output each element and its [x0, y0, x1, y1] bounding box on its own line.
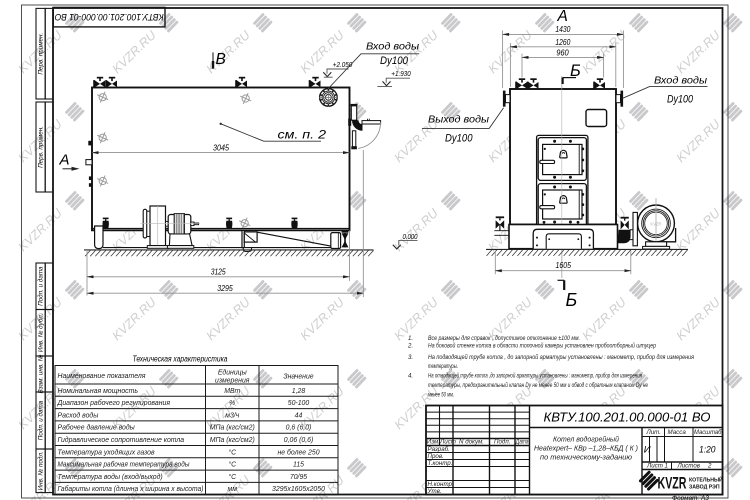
svg-text:измерения: измерения: [215, 378, 250, 385]
svg-text:Подп. и дата: Подп. и дата: [36, 400, 44, 440]
svg-text:°С: °С: [228, 448, 237, 456]
svg-text:Подп.: Подп.: [494, 439, 510, 446]
svg-text:°С: °С: [228, 473, 237, 481]
svg-text:0,6 (6,0): 0,6 (6,0): [286, 425, 312, 432]
svg-text:Б: Б: [570, 62, 581, 80]
svg-text:70/95: 70/95: [290, 474, 307, 481]
svg-text:А3: А3: [700, 495, 709, 500]
svg-text:Перв. примен.: Перв. примен.: [37, 126, 44, 168]
svg-text:МПа (кгс/см2): МПа (кгс/см2): [210, 437, 255, 444]
svg-text:Наименование показателя: Наименование показателя: [58, 373, 146, 380]
svg-text:3295: 3295: [217, 283, 233, 293]
svg-text:1:20: 1:20: [699, 445, 716, 456]
svg-text:На боковой стенке котла в обла: На боковой стенке котла в области топочн…: [428, 343, 657, 350]
svg-text:КОТЕЛЬНЫЙ: КОТЕЛЬНЫЙ: [689, 476, 723, 484]
svg-text:N докум.: N докум.: [459, 439, 484, 446]
svg-text:1.: 1.: [408, 335, 413, 342]
svg-text:2: 2: [707, 463, 712, 470]
svg-text:+1.930: +1.930: [391, 69, 411, 78]
svg-text:температуры, предохранительный: температуры, предохранительный клапан Dу…: [428, 382, 648, 389]
svg-text:Heatexpert– КВр –1,28–КБД ( К: Heatexpert– КВр –1,28–КБД ( К ): [534, 446, 638, 453]
svg-text:Подп. и дата: Подп. и дата: [36, 266, 44, 306]
svg-text:Инв. № дубл.: Инв. № дубл.: [36, 313, 44, 352]
svg-text:На отводящей трубе котла ,до з: На отводящей трубе котла ,до запорной ар…: [428, 373, 643, 380]
svg-text:см. п. 2: см. п. 2: [278, 128, 327, 142]
svg-text:Вход воды: Вход воды: [366, 41, 419, 53]
svg-text:44: 44: [295, 412, 303, 419]
svg-text:+2.050: +2.050: [333, 60, 353, 69]
svg-text:0.000: 0.000: [403, 232, 419, 241]
svg-text:Пров.: Пров.: [428, 453, 444, 460]
svg-text:Dy100: Dy100: [445, 133, 473, 145]
svg-text:Dy100: Dy100: [380, 55, 409, 67]
svg-text:А: А: [557, 8, 568, 25]
svg-text:3.: 3.: [408, 354, 413, 361]
svg-text:Техническая характеристика: Техническая характеристика: [133, 355, 229, 364]
svg-text:3045: 3045: [213, 143, 229, 153]
svg-text:Котел водогрейный: Котел водогрейный: [553, 436, 619, 444]
svg-text:КВТУ.100.201.00.000-01 ВО: КВТУ.100.201.00.000-01 ВО: [544, 410, 711, 425]
svg-text:Вход воды: Вход воды: [654, 75, 707, 87]
svg-text:м3/ч: м3/ч: [225, 412, 239, 419]
svg-text:Расход воды: Расход воды: [58, 411, 99, 419]
svg-text:Масштаб: Масштаб: [694, 429, 722, 436]
svg-text:Разраб.: Разраб.: [428, 446, 450, 453]
svg-text:Перв. примен.: Перв. примен.: [37, 33, 44, 75]
svg-text:Температура уходящих газов: Температура уходящих газов: [58, 448, 156, 456]
svg-text:Т.контр.: Т.контр.: [428, 460, 453, 467]
svg-text:Взам. инв. №: Взам. инв. №: [37, 354, 44, 393]
svg-text:%: %: [229, 400, 235, 407]
svg-text:Температура воды (вход/выход): Температура воды (вход/выход): [58, 473, 163, 481]
svg-text:В: В: [216, 51, 226, 68]
svg-text:Лист: Лист: [646, 463, 663, 470]
svg-text:Все размеры для справок , допу: Все размеры для справок , допустимое отк…: [428, 335, 580, 342]
svg-text:1430: 1430: [555, 24, 570, 34]
svg-text:А: А: [59, 152, 70, 169]
svg-text:Формат: Формат: [672, 495, 698, 500]
svg-text:мм: мм: [228, 486, 238, 493]
svg-text:Б: Б: [566, 290, 578, 310]
svg-text:Максимальная рабочая температу: Максимальная рабочая температура воды: [58, 461, 190, 469]
svg-text:3125: 3125: [211, 266, 226, 276]
svg-text:50-100: 50-100: [288, 400, 310, 407]
svg-text:МВт: МВт: [224, 388, 240, 395]
svg-text:Лит.: Лит.: [646, 429, 662, 436]
svg-text:Н.контр.: Н.контр.: [428, 481, 454, 488]
svg-text:2.: 2.: [407, 343, 413, 350]
svg-text:4.: 4.: [408, 373, 413, 380]
svg-text:Масса: Масса: [668, 429, 687, 436]
svg-text:Габариты котла (длинна х ширин: Габариты котла (длинна х ширина х высота…: [58, 485, 204, 493]
svg-text:Значение: Значение: [283, 374, 313, 381]
svg-text:МПа (кгс/см2): МПа (кгс/см2): [210, 425, 255, 432]
svg-text:1,28: 1,28: [292, 388, 306, 395]
svg-text:КВТУ.100.201.00.000-01 ВО: КВТУ.100.201.00.000-01 ВО: [55, 12, 164, 22]
svg-text:по техническому-заданию: по техническому-заданию: [540, 454, 633, 462]
svg-text:1260: 1260: [555, 37, 570, 47]
svg-text:не более 250: не более 250: [277, 448, 319, 456]
svg-text:Дата: Дата: [515, 439, 529, 446]
svg-text:115: 115: [293, 462, 304, 469]
svg-text:Лист: Лист: [439, 439, 456, 446]
svg-text:На подводящей трубе котла ,: На подводящей трубе котла , до запорной …: [428, 354, 695, 361]
svg-text:Номинальная мощность: Номинальная мощность: [58, 388, 139, 395]
svg-text:И: И: [644, 445, 651, 456]
svg-text:Гидравлическое сопротивление к: Гидравлическое сопротивление котла: [58, 436, 185, 444]
svg-text:0,06 (0,6): 0,06 (0,6): [284, 437, 314, 444]
svg-text:Изм.: Изм.: [427, 439, 440, 446]
svg-text:1: 1: [665, 463, 668, 470]
svg-text:3295х1605х2050: 3295х1605х2050: [272, 486, 325, 493]
svg-text:KVZR: KVZR: [658, 474, 687, 493]
svg-text:ЗАВОД РЭП: ЗАВОД РЭП: [689, 485, 720, 491]
svg-text:менее 50 мм.: менее 50 мм.: [428, 391, 454, 398]
svg-text:Диапазон рабочего регулировани: Диапазон рабочего регулирования: [57, 399, 171, 407]
svg-text:Dy100: Dy100: [667, 94, 694, 106]
svg-text:Рабочее давление воды: Рабочее давление воды: [58, 424, 135, 432]
svg-text:960: 960: [556, 47, 569, 57]
svg-text:Листов: Листов: [677, 463, 701, 470]
svg-text:1605: 1605: [556, 260, 572, 270]
svg-text:Инв. № подл.: Инв. № подл.: [36, 451, 44, 490]
svg-text:Единицы: Единицы: [218, 369, 247, 377]
svg-text:температуры.: температуры.: [428, 363, 458, 370]
svg-text:Утв.: Утв.: [427, 488, 442, 495]
svg-text:°С: °С: [228, 461, 237, 469]
svg-text:Выход воды: Выход воды: [428, 113, 489, 125]
